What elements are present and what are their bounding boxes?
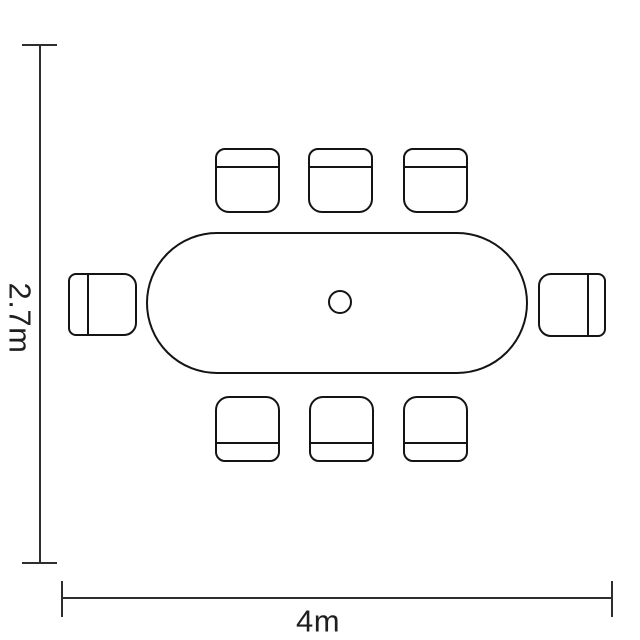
chair-right-end-backrest: [587, 275, 604, 335]
chair-top-1: [215, 148, 280, 213]
chair-top-3-backrest: [405, 150, 466, 168]
chair-left-end-backrest: [70, 275, 89, 334]
chair-bottom-3: [403, 396, 468, 462]
chair-top-2-backrest: [310, 150, 371, 168]
width-dimension-cap-left: [61, 581, 63, 617]
chair-bottom-1: [215, 396, 280, 462]
width-dimension-label: 4m: [296, 606, 340, 637]
chair-top-2: [308, 148, 373, 213]
width-dimension-line: [62, 597, 613, 599]
chair-bottom-2-backrest: [311, 442, 372, 460]
chair-bottom-3-backrest: [405, 442, 466, 460]
chair-bottom-1-backrest: [217, 442, 278, 460]
floor-plan-diagram: 2.7m 4m: [0, 0, 640, 640]
chair-top-3: [403, 148, 468, 213]
height-dimension-label: 2.7m: [5, 283, 36, 354]
height-dimension-line: [39, 45, 41, 563]
width-dimension-cap-right: [611, 581, 613, 617]
chair-top-1-backrest: [217, 150, 278, 168]
table-center-circle: [328, 290, 352, 314]
chair-right-end: [538, 273, 606, 337]
height-dimension-cap-bottom: [22, 562, 57, 564]
chair-left-end: [68, 273, 137, 336]
chair-bottom-2: [309, 396, 374, 462]
height-dimension-cap-top: [22, 44, 57, 46]
